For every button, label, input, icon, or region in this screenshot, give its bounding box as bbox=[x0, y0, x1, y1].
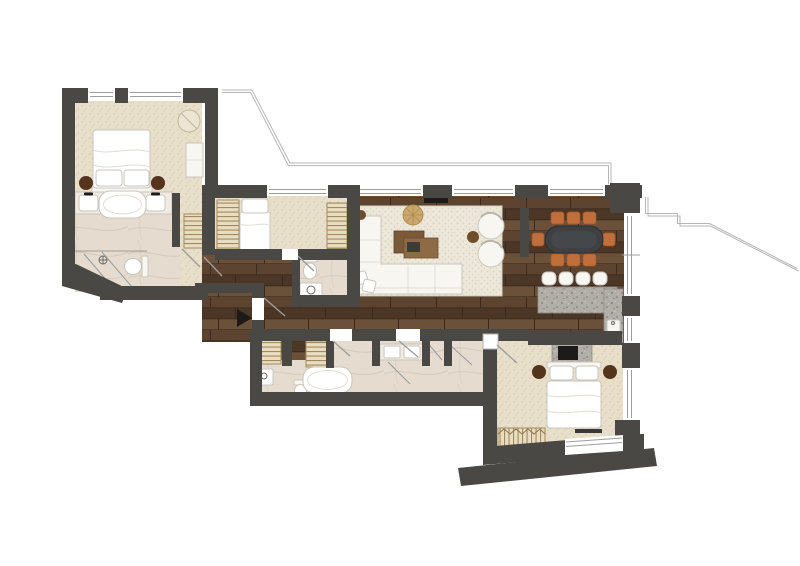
sink bbox=[300, 283, 322, 297]
wall-segment bbox=[347, 185, 360, 307]
nightstand bbox=[151, 176, 165, 190]
wall-tv bbox=[424, 198, 448, 203]
bench bbox=[575, 429, 602, 433]
floor-plan-canvas bbox=[0, 0, 800, 566]
window bbox=[90, 93, 181, 97]
pillow bbox=[550, 366, 573, 380]
wall-segment bbox=[422, 336, 430, 366]
dining-chair bbox=[532, 233, 544, 246]
pillow bbox=[242, 199, 268, 213]
dining-chair bbox=[583, 254, 596, 266]
dining-chair bbox=[551, 212, 564, 224]
nightstand bbox=[603, 365, 617, 379]
wall-segment bbox=[205, 88, 218, 198]
wardrobe bbox=[306, 341, 327, 367]
living-room bbox=[352, 198, 504, 296]
wall-segment bbox=[115, 88, 128, 103]
pillow bbox=[576, 366, 598, 380]
toilet-tank bbox=[142, 256, 148, 277]
faucet bbox=[151, 193, 160, 196]
table-top-sheen bbox=[551, 231, 597, 248]
wall-segment bbox=[444, 336, 452, 366]
bar-stool bbox=[559, 272, 573, 285]
faucet bbox=[84, 193, 93, 196]
toilet bbox=[304, 263, 317, 279]
wardrobe bbox=[327, 203, 347, 249]
sink bbox=[384, 346, 400, 358]
wall-segment bbox=[282, 338, 292, 366]
shaft bbox=[483, 334, 498, 349]
pillow bbox=[124, 170, 149, 186]
wall-segment bbox=[520, 208, 529, 257]
pillow bbox=[96, 170, 122, 186]
wall-segment bbox=[622, 343, 640, 368]
nightstand bbox=[79, 176, 93, 190]
wall-segment bbox=[515, 185, 548, 198]
wall-segment bbox=[62, 88, 88, 103]
sink bbox=[79, 195, 98, 211]
floor-plan bbox=[0, 0, 800, 566]
dining-chair bbox=[603, 233, 615, 246]
wall-segment bbox=[483, 341, 497, 447]
door-opening bbox=[396, 329, 420, 341]
bar-stool bbox=[542, 272, 556, 285]
double-bed bbox=[547, 381, 601, 428]
door-opening bbox=[330, 329, 352, 341]
sink bbox=[146, 195, 165, 211]
dining-chair bbox=[551, 254, 564, 266]
wall-segment bbox=[326, 338, 334, 368]
throw-pillow bbox=[362, 279, 377, 294]
window bbox=[622, 216, 640, 418]
wall-segment bbox=[372, 336, 380, 366]
nightstand bbox=[532, 365, 546, 379]
wall-segment bbox=[610, 183, 640, 213]
wall-segment bbox=[172, 193, 180, 247]
dining-chair bbox=[583, 212, 596, 224]
cooktop bbox=[558, 346, 578, 360]
door-opening bbox=[282, 249, 298, 260]
wall-segment bbox=[528, 331, 622, 345]
dining-chair bbox=[567, 212, 580, 224]
bar-stool bbox=[593, 272, 607, 285]
wall-segment bbox=[62, 88, 75, 280]
single-bed bbox=[240, 212, 270, 252]
wardrobe bbox=[184, 214, 203, 248]
bar-stool bbox=[576, 272, 590, 285]
wall-segment bbox=[423, 185, 452, 198]
wall-segment bbox=[100, 286, 208, 300]
door-opening bbox=[252, 298, 264, 320]
wardrobe bbox=[217, 200, 239, 250]
side-table bbox=[467, 231, 479, 243]
toilet bbox=[125, 259, 142, 275]
wall-segment bbox=[202, 185, 215, 255]
wall-segment bbox=[622, 296, 640, 316]
wall-segment bbox=[250, 392, 492, 406]
tray bbox=[407, 242, 420, 252]
dining-chair bbox=[567, 254, 580, 266]
